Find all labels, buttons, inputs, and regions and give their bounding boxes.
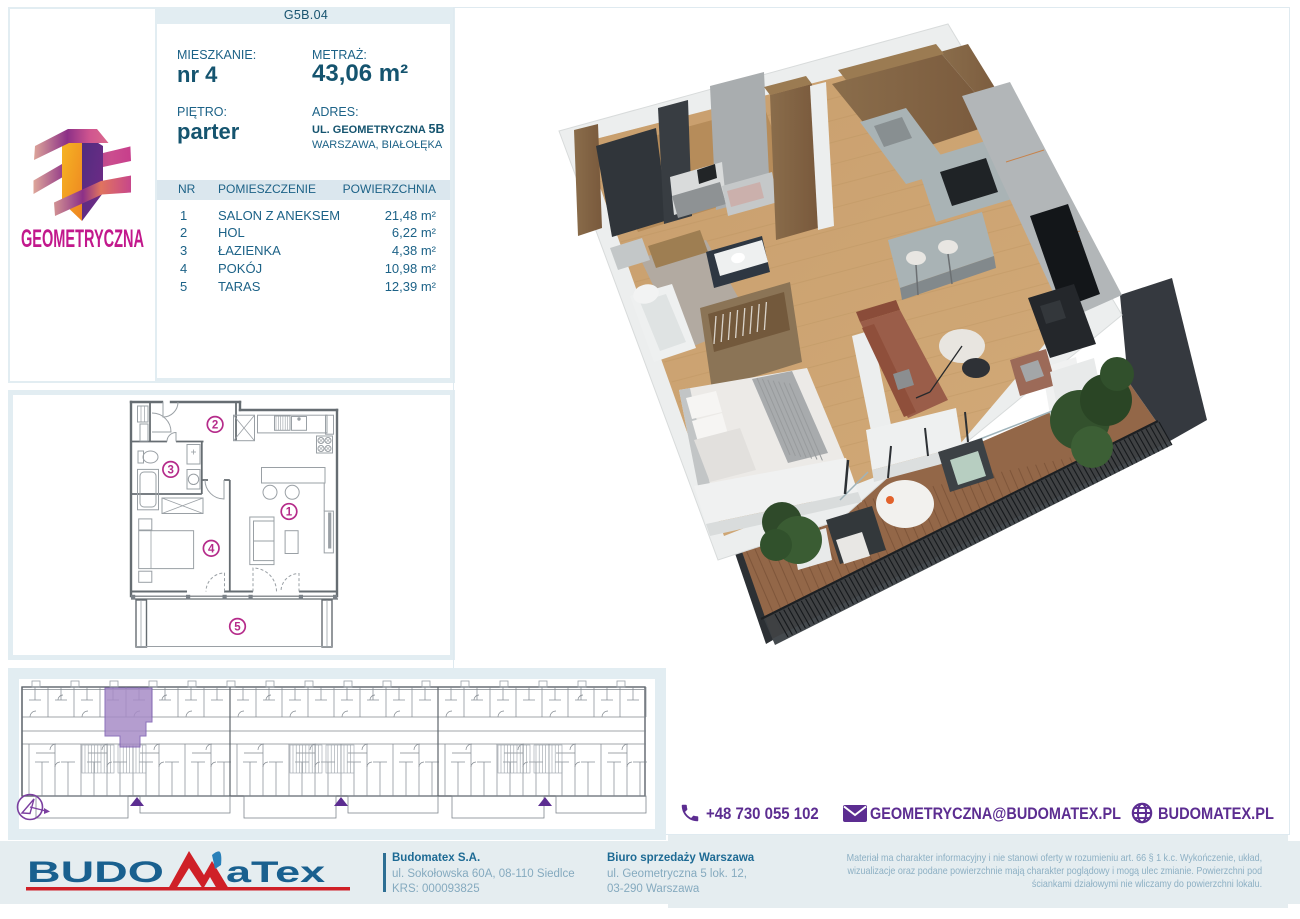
svg-text:BUDO: BUDO	[27, 856, 164, 889]
svg-text:1: 1	[286, 507, 293, 519]
svg-text:5: 5	[234, 622, 241, 634]
svg-text:aTex: aTex	[226, 855, 325, 889]
svg-text:GEOMETRYCZNA: GEOMETRYCZNA	[21, 225, 144, 253]
svg-text:4: 4	[208, 544, 215, 556]
svg-text:2: 2	[212, 420, 218, 432]
svg-text:3: 3	[167, 465, 173, 477]
